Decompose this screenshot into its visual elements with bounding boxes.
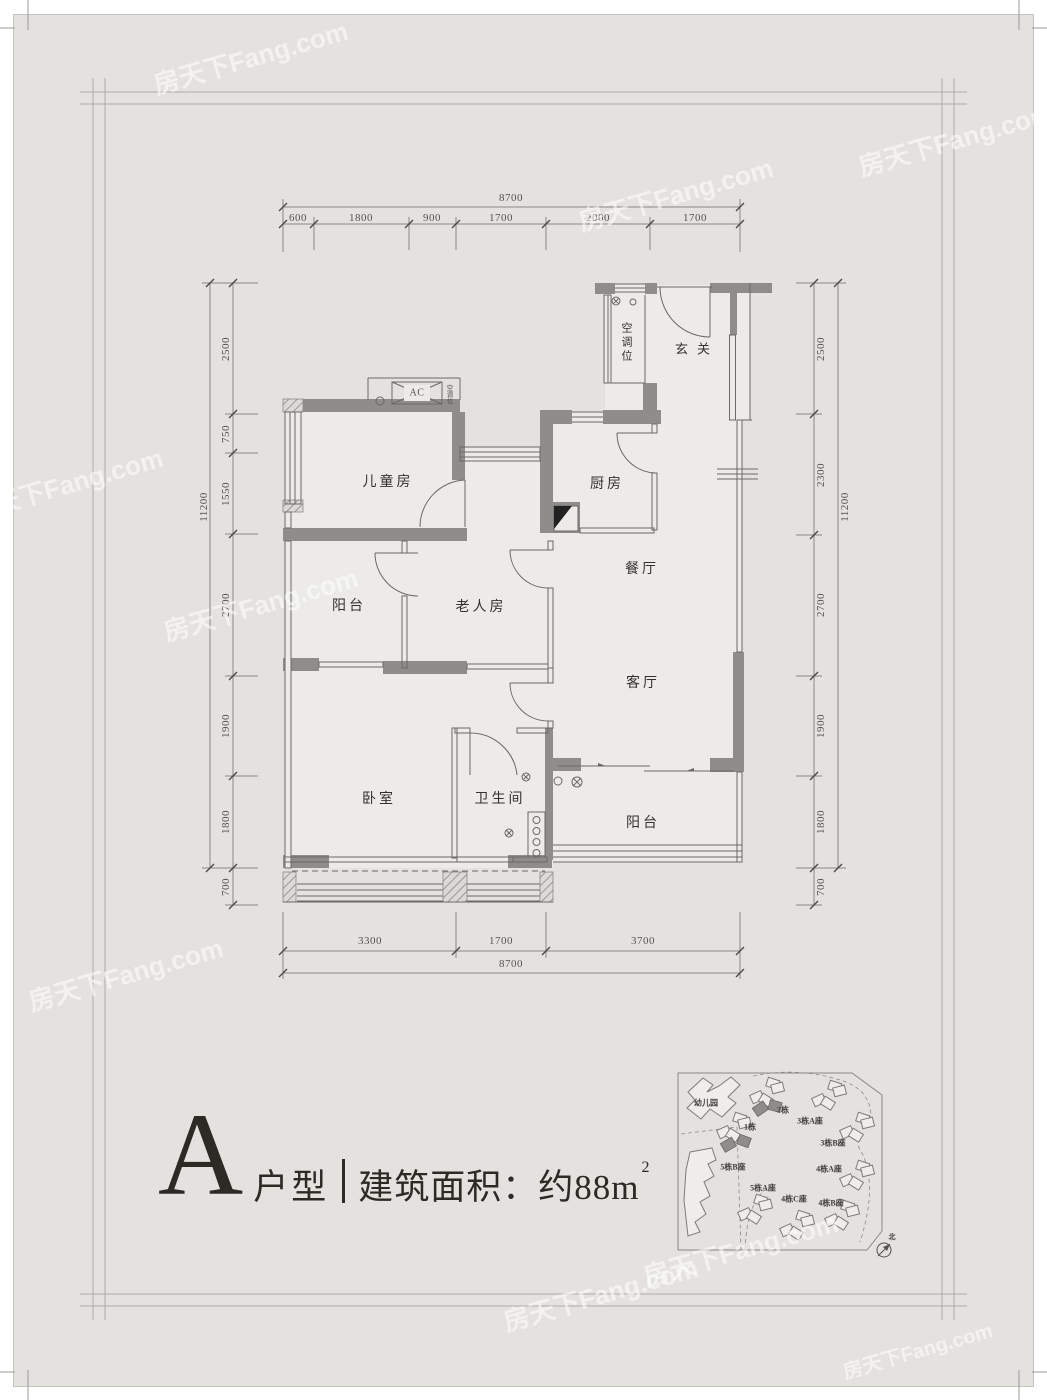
dim-bottom-seg-1: 1700 — [489, 935, 513, 947]
dim-top-seg-2: 900 — [423, 212, 441, 224]
dim-bottom-seg-2: 3700 — [631, 935, 655, 947]
room-label-entry: 玄关 — [675, 339, 719, 358]
dim-left-overall: 11200 — [198, 492, 210, 522]
dim-top-seg-1: 1800 — [349, 212, 373, 224]
room-label-kitchen: 厨房 — [590, 473, 624, 493]
ac-small-label: 空调位 — [443, 384, 453, 404]
title-divider — [342, 1159, 345, 1203]
room-label-bathroom: 卫生间 — [475, 788, 526, 808]
site-label-b4b: 4栋B座 — [818, 1198, 843, 1209]
site-label-b3a: 3栋A座 — [797, 1116, 823, 1127]
compass-north-label: 北 — [889, 1232, 896, 1242]
unit-area-label: 建筑面积：约88m — [358, 1170, 639, 1210]
dim-right-seg-0: 2500 — [815, 337, 827, 361]
site-label-b3b: 3栋B座 — [820, 1138, 845, 1149]
dim-top-seg-4: 2000 — [586, 212, 610, 224]
ac-unit-label: AC — [410, 388, 425, 399]
site-label-b4a: 4栋A座 — [816, 1164, 842, 1175]
site-label-kindergarten: 幼儿园 — [694, 1098, 718, 1109]
dim-right-seg-3: 1900 — [815, 714, 827, 738]
site-label-b1: 1栋 — [744, 1122, 756, 1133]
dim-right-seg-4: 1800 — [815, 810, 827, 834]
site-label-b5a: 5栋A座 — [750, 1183, 776, 1194]
page: 8700 600 1800 900 1700 2000 1700 3300 17… — [0, 0, 1047, 1400]
dim-left-seg-1: 750 — [220, 425, 232, 443]
site-label-b5b: 5栋B座 — [720, 1162, 745, 1173]
dim-top-seg-5: 1700 — [683, 212, 707, 224]
dim-right-seg-1: 2300 — [815, 463, 827, 487]
room-label-dining: 餐厅 — [625, 558, 659, 578]
dim-left-seg-0: 2500 — [220, 337, 232, 361]
dim-left-seg-6: 700 — [220, 878, 232, 896]
unit-type-label: 户型 — [253, 1170, 329, 1210]
site-label-b2: 2栋 — [777, 1105, 789, 1116]
dim-left-seg-2: 1550 — [220, 482, 232, 506]
dim-top-seg-3: 1700 — [489, 212, 513, 224]
room-label-elder: 老人房 — [456, 596, 507, 616]
unit-area-superscript: 2 — [641, 1160, 649, 1176]
room-label-ac-shaft: 空调位 — [618, 322, 634, 364]
dim-left-seg-4: 1900 — [220, 714, 232, 738]
room-label-children: 儿童房 — [363, 471, 414, 491]
dim-top-overall: 8700 — [499, 192, 523, 204]
apartment-floor — [285, 285, 750, 868]
room-label-living: 客厅 — [626, 672, 660, 692]
dim-bottom-seg-0: 3300 — [358, 935, 382, 947]
dim-left-seg-5: 1800 — [220, 810, 232, 834]
compass-icon — [877, 1243, 891, 1257]
room-label-bedroom: 卧室 — [362, 788, 396, 808]
dim-bottom-overall: 8700 — [499, 958, 523, 970]
dim-left-seg-3: 2700 — [220, 593, 232, 617]
unit-letter: A — [158, 1101, 243, 1210]
dim-right-seg-5: 700 — [815, 878, 827, 896]
dim-right-seg-2: 2700 — [815, 593, 827, 617]
unit-title: A 户型 建筑面积：约88m 2 — [158, 1094, 649, 1210]
dim-right-overall: 11200 — [839, 492, 851, 522]
dim-top-seg-0: 600 — [289, 212, 307, 224]
site-building-5b — [684, 1148, 716, 1236]
room-label-balcony-lower: 阳台 — [626, 812, 660, 832]
site-label-b4c: 4栋C座 — [781, 1194, 807, 1205]
room-label-balcony-upper: 阳台 — [332, 595, 366, 615]
